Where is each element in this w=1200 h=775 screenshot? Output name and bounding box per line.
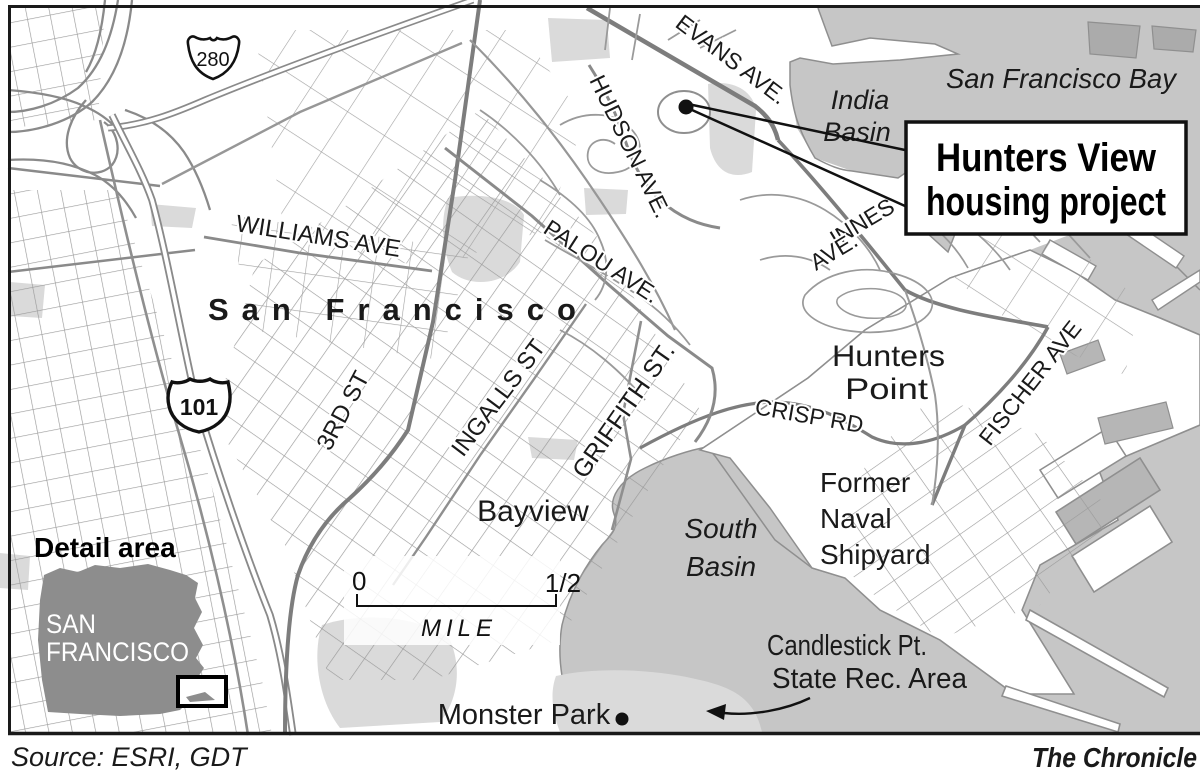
- svg-text:Shipyard: Shipyard: [820, 539, 931, 570]
- svg-text:Naval: Naval: [820, 503, 892, 534]
- svg-text:280: 280: [196, 49, 229, 71]
- svg-text:101: 101: [180, 394, 219, 420]
- svg-text:Bayview: Bayview: [477, 495, 589, 528]
- svg-text:Monster Park: Monster Park: [438, 699, 611, 731]
- svg-text:State Rec. Area: State Rec. Area: [772, 663, 968, 695]
- svg-text:Point: Point: [845, 373, 929, 406]
- svg-text:Hunters: Hunters: [832, 340, 945, 373]
- svg-text:Source: ESRI, GDT: Source: ESRI, GDT: [11, 742, 249, 772]
- svg-text:0: 0: [352, 566, 366, 596]
- svg-text:San Francisco Bay: San Francisco Bay: [946, 63, 1178, 94]
- svg-text:South: South: [684, 513, 757, 544]
- svg-text:Hunters View: Hunters View: [936, 136, 1157, 180]
- svg-text:Former: Former: [820, 467, 910, 498]
- svg-text:India: India: [831, 85, 890, 115]
- svg-text:Detail area: Detail area: [34, 532, 176, 563]
- svg-text:housing project: housing project: [926, 180, 1166, 224]
- svg-text:Basin: Basin: [823, 117, 891, 147]
- svg-text:The Chronicle: The Chronicle: [1032, 742, 1197, 773]
- svg-text:SAN: SAN: [46, 609, 96, 639]
- svg-text:Basin: Basin: [686, 551, 756, 582]
- svg-text:1/2: 1/2: [545, 568, 581, 598]
- svg-text:San Francisco: San Francisco: [208, 292, 589, 327]
- svg-text:FRANCISCO: FRANCISCO: [46, 637, 189, 667]
- svg-text:Candlestick Pt.: Candlestick Pt.: [767, 630, 927, 662]
- svg-text:MILE: MILE: [421, 615, 497, 642]
